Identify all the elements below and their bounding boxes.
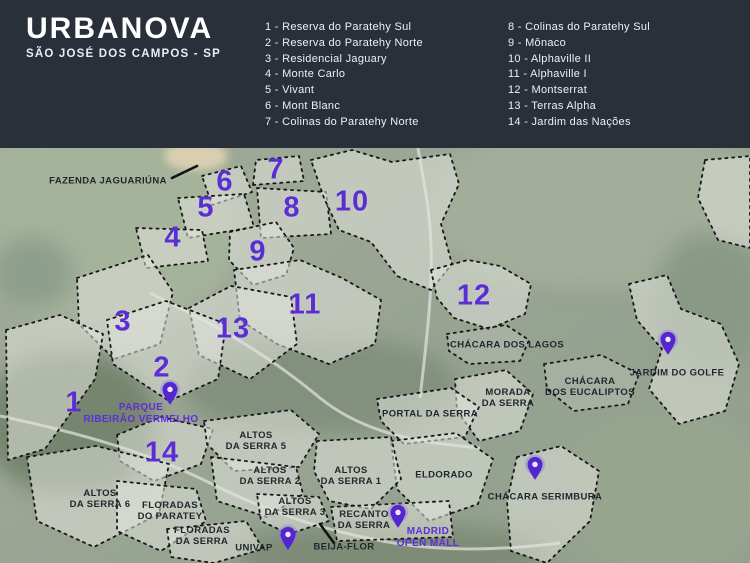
- legend-item-5: 5 - Vivant: [265, 83, 423, 99]
- region-number-3: 3: [114, 308, 131, 337]
- legend-item-1: 1 - Reserva do Paratehy Sul: [265, 20, 423, 36]
- region-number-11: 11: [289, 291, 322, 320]
- region-number-1: 1: [65, 389, 82, 418]
- legend-item-2: 2 - Reserva do Paratehy Norte: [265, 36, 423, 52]
- map-pin-icon: [277, 524, 299, 552]
- map-label-floradas-da-serra: FLORADASDA SERRA: [174, 525, 230, 547]
- map-label-beija-flor: BEIJA-FLOR: [314, 541, 375, 552]
- map-label-fazenda-jaguariuna: FAZENDA JAGUARIÚNA: [49, 175, 167, 186]
- legend-item-10: 10 - Alphaville II: [508, 52, 650, 68]
- chacara-serimbura-pin: [524, 454, 546, 482]
- map-label-altos-da-serra-5: ALTOSDA SERRA 5: [226, 430, 287, 452]
- page-subtitle: SÃO JOSÉ DOS CAMPOS - SP: [26, 48, 221, 60]
- legend-item-3: 3 - Residencial Jaguary: [265, 52, 423, 68]
- map-label-eldorado: ELDORADO: [415, 469, 473, 480]
- urbanova-map-infographic: URBANOVA SÃO JOSÉ DOS CAMPOS - SP 1 - Re…: [0, 0, 750, 563]
- map-label-recanto-da-serra: RECANTODA SERRA: [338, 509, 390, 531]
- title-block: URBANOVA SÃO JOSÉ DOS CAMPOS - SP: [26, 12, 221, 60]
- region-number-6: 6: [216, 168, 233, 197]
- region-number-14: 14: [145, 439, 179, 468]
- map-label-jardim-do-golfe: JARDIM DO GOLFE: [630, 367, 725, 378]
- jardim-do-golfe-pin: [657, 329, 679, 357]
- map-label-altos-da-serra-3: ALTOSDA SERRA 3: [265, 496, 326, 518]
- map-pin-icon: [657, 329, 679, 357]
- region-outline-chacara-serimbura: [507, 446, 599, 563]
- region-number-13: 13: [216, 315, 250, 344]
- legend-item-6: 6 - Mont Blanc: [265, 99, 423, 115]
- map-label-floradas-do-paratey: FLORADASDO PARATEY: [138, 500, 203, 522]
- map-label-morada-da-serra: MORADADA SERRA: [482, 387, 534, 409]
- map-label-chacara-serimbura: CHÁCARA SERIMBURA: [488, 491, 603, 502]
- map-label-chacara-dos-eucaliptos: CHÁCARADOS EUCALIPTOS: [545, 376, 635, 398]
- map-label-portal-da-serra: PORTAL DA SERRA: [382, 408, 478, 419]
- region-number-4: 4: [164, 224, 181, 253]
- map-label-altos-da-serra-6: ALTOSDA SERRA 6: [70, 488, 131, 510]
- legend-item-12: 12 - Montserrat: [508, 83, 650, 99]
- legend-item-8: 8 - Colinas do Paratehy Sul: [508, 20, 650, 36]
- region-number-5: 5: [197, 194, 214, 223]
- map-label-chacara-dos-lagos: CHÁCARA DOS LAGOS: [450, 339, 564, 350]
- madrid-open-mall-pin: [387, 502, 409, 530]
- map-label-univap: UNIVAP: [235, 542, 273, 553]
- legend-item-9: 9 - Mônaco: [508, 36, 650, 52]
- header: URBANOVA SÃO JOSÉ DOS CAMPOS - SP 1 - Re…: [0, 0, 750, 148]
- map-label-altos-da-serra-1: ALTOSDA SERRA 1: [321, 465, 382, 487]
- parque-ribeirao-vermelho-pin: [159, 379, 181, 407]
- page-title: URBANOVA: [26, 12, 221, 45]
- region-number-8: 8: [283, 194, 300, 223]
- fazenda-jaguariuna-leader-line: [172, 166, 197, 178]
- map-pin-icon: [159, 379, 181, 407]
- region-outline-jardim-do-golfe: [629, 275, 739, 424]
- legend-item-14: 14 - Jardim das Nações: [508, 115, 650, 131]
- map-pin-icon: [524, 454, 546, 482]
- univap-pin: [277, 524, 299, 552]
- legend-column-2: 8 - Colinas do Paratehy Sul9 - Mônaco10 …: [508, 20, 650, 131]
- region-number-2: 2: [153, 354, 170, 383]
- legend-item-11: 11 - Alphaville I: [508, 67, 650, 83]
- legend-item-4: 4 - Monte Carlo: [265, 67, 423, 83]
- legend-item-13: 13 - Terras Alpha: [508, 99, 650, 115]
- region-number-12: 12: [457, 282, 491, 311]
- region-number-9: 9: [249, 238, 266, 267]
- map-pin-icon: [387, 502, 409, 530]
- satellite-map: 1234567891011121314FAZENDA JAGUARIÚNACHÁ…: [0, 148, 750, 563]
- map-label-altos-da-serra-2: ALTOSDA SERRA 2: [240, 465, 301, 487]
- region-number-7: 7: [267, 156, 284, 185]
- region-outline-right-edge: [698, 156, 750, 248]
- legend-column-1: 1 - Reserva do Paratehy Sul2 - Reserva d…: [265, 20, 423, 131]
- region-number-10: 10: [335, 188, 369, 217]
- map-label-parque-ribeirao-vermelho: PARQUERIBEIRÃO VERMELHO: [83, 402, 198, 426]
- legend-item-7: 7 - Colinas do Paratehy Norte: [265, 115, 423, 131]
